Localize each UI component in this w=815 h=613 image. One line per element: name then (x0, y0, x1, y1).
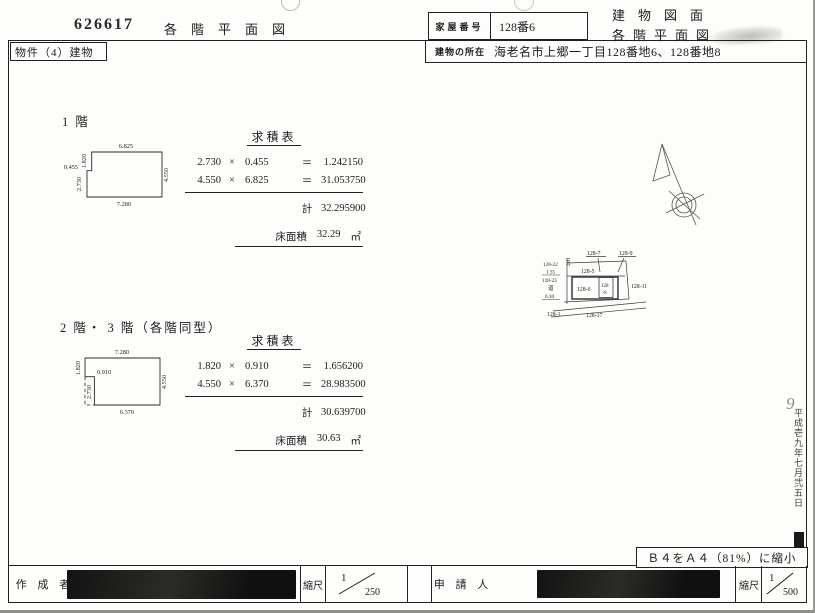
parcel-128-7: 128-7 (587, 251, 601, 257)
north-arrow (640, 135, 720, 240)
footer-strip: 作 成 者 縮尺 1 250 申 請 人 縮尺 1 500 (8, 566, 807, 603)
dim-step: 0.910 (97, 369, 111, 376)
parcel-128-8: -8 (603, 291, 608, 296)
form-title-line1: 建物図面 (612, 5, 807, 24)
parcel-128-11: 128-11 (631, 284, 647, 290)
parcel-128-1: 128-1 (547, 312, 561, 318)
house-number-box: 家屋番号 128番6 (428, 12, 588, 40)
map-dimension: 2.01 (567, 257, 572, 266)
svg-text:250: 250 (365, 587, 380, 598)
floor23-plan-drawing: 7.280 6.370 4.550 1.820 0.910 2.730 (58, 334, 183, 426)
area-table-title: 求積表 (185, 332, 363, 349)
divider (735, 566, 736, 602)
scanned-document-page: 626617 各階平面図 家屋番号 128番6 建物図面 各階平面図 物件（4）… (0, 0, 815, 613)
parcel-128-23: 128-23 (542, 278, 557, 284)
divider (325, 566, 326, 602)
location-label: 建物の所在 (426, 45, 494, 58)
redacted-stamp (794, 532, 804, 548)
page-title: 各階平面図 (164, 19, 299, 38)
dim-right: 4.550 (161, 375, 168, 389)
site-location-map: 128-7 128-9 128-22 2.01 1.35 128-23 道 0.… (540, 246, 658, 324)
parcel-128-9: 128-9 (619, 251, 633, 257)
applicant-label: 申 請 人 (435, 566, 491, 602)
svg-text:500: 500 (783, 587, 798, 598)
scale-label-right: 縮尺 (737, 566, 761, 602)
floor-area-row: 床面積 32.29 ㎡ (235, 229, 363, 247)
property-label-box: 物件（4）建物 (10, 42, 107, 61)
dim-top: 6.825 (119, 143, 133, 150)
parcel-128-17: 128-17 (586, 313, 603, 319)
svg-text:1: 1 (769, 572, 775, 584)
parcel-128-8: 128 (601, 284, 609, 289)
parcel-128-22: 128-22 (543, 262, 558, 268)
redacted-applicant-name (537, 570, 720, 598)
building-location-row: 建物の所在 海老名市上郷一丁目128番地6、128番地8 (425, 41, 807, 63)
dim-top: 7.280 (115, 349, 129, 356)
dim-left-upper: 1.820 (75, 361, 82, 375)
redacted-creator-name (67, 570, 296, 599)
scale-fraction-1-250: 1 250 (331, 568, 397, 599)
divider (761, 566, 762, 602)
floor1-area-table: 求積表 2.730 × 0.455 ＝ 1.242150 4.550 × 6.8… (185, 128, 363, 247)
table-rule (185, 396, 363, 397)
scale-label-left: 縮尺 (301, 566, 325, 602)
floor1-plan-drawing: 6.825 7.280 4.550 1.820 0.455 2.730 (58, 128, 183, 218)
house-number-value: 128番6 (491, 13, 587, 39)
parcel-128-6: 128-6 (577, 287, 591, 293)
scale-fraction-1-500: 1 500 (763, 568, 807, 599)
calc-row: 4.550 × 6.370 ＝ 28.983500 (185, 375, 363, 393)
calc-row: 4.550 × 6.825 ＝ 31.053750 (185, 171, 363, 189)
drawing-frame (8, 40, 807, 566)
dim-step: 0.455 (64, 164, 78, 171)
reduction-note-box: Ｂ４をＡ４（81%）に縮小 (636, 547, 808, 568)
divider (431, 566, 432, 602)
stamp-circle-mark (281, 0, 300, 11)
house-number-label: 家屋番号 (429, 13, 491, 39)
creator-label: 作 成 者 (19, 566, 71, 602)
dim-right: 4.550 (163, 168, 170, 182)
calc-row: 1.820 × 0.910 ＝ 1.656200 (185, 357, 363, 375)
road-label: 道 (548, 284, 554, 292)
dim-left-lower: 2.730 (86, 385, 93, 399)
area-table-title: 求積表 (185, 128, 363, 145)
divider (407, 566, 408, 602)
floor23-area-table: 求積表 1.820 × 0.910 ＝ 1.656200 4.550 × 6.3… (185, 332, 363, 451)
table-rule (185, 192, 363, 193)
parcel-128-5: 128-5 (581, 269, 595, 275)
dim-left-upper: 1.820 (81, 154, 88, 168)
dim-bottom: 7.280 (117, 201, 131, 208)
map-dimension-135: 1.35 (546, 270, 555, 276)
total-row: 計 32.295900 (185, 199, 363, 217)
floor-area-row: 床面積 30.63 ㎡ (235, 433, 363, 451)
total-row: 計 30.639700 (185, 403, 363, 421)
registration-date-note: 平成壱九年七月弐五日 (792, 408, 805, 548)
dim-bottom: 6.370 (120, 409, 134, 416)
document-stamp-number: 626617 (74, 16, 134, 34)
map-dimension-030: 0.30 (545, 294, 554, 300)
dim-left-lower: 2.730 (76, 177, 83, 191)
form-title: 建物図面 各階平面図 (612, 5, 807, 44)
location-value: 海老名市上郷一丁目128番地6、128番地8 (494, 43, 721, 60)
calc-row: 2.730 × 0.455 ＝ 1.242150 (185, 153, 363, 171)
stamp-circle-mark (514, 0, 534, 11)
svg-text:1: 1 (341, 572, 347, 584)
